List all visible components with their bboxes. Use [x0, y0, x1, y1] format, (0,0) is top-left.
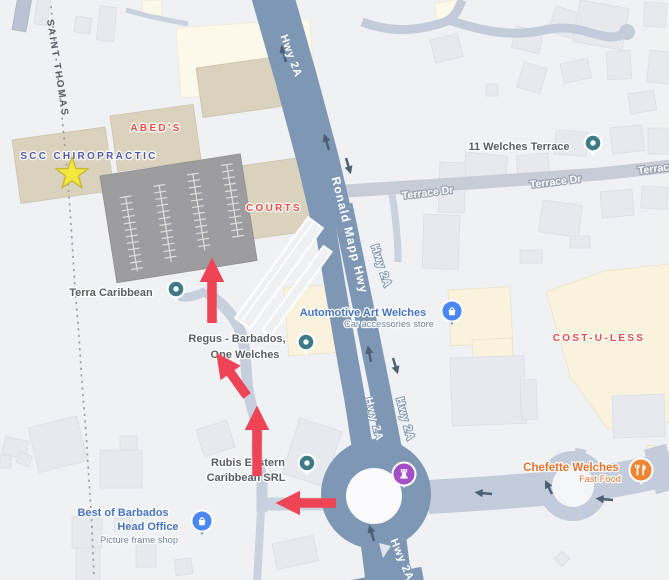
map-canvas[interactable]: Hwy 2A Ronald Mapp Hwy Hwy 2A Hwy 2A Hwy… — [0, 0, 669, 580]
svg-text:Caribbean SRL: Caribbean SRL — [207, 472, 286, 484]
poi-label-11-welches-terrace[interactable]: 11 Welches Terrace — [468, 141, 569, 153]
svg-text:Automotive Art Welches: Automotive Art Welches — [300, 307, 427, 319]
svg-text:Car accessories store: Car accessories store — [344, 319, 434, 329]
poi-label-terra-caribbean[interactable]: Terra Caribbean — [69, 287, 153, 299]
area-label-abeds: ABED'S — [130, 123, 181, 134]
svg-text:Rubis Eastern: Rubis Eastern — [211, 457, 285, 469]
svg-text:Fast Food: Fast Food — [579, 474, 621, 484]
map-svg[interactable]: Hwy 2A Ronald Mapp Hwy Hwy 2A Hwy 2A Hwy… — [0, 0, 669, 580]
svg-text:Picture frame shop: Picture frame shop — [100, 535, 178, 545]
area-label-courts: COURTS — [246, 203, 302, 214]
svg-text:Best of Barbados: Best of Barbados — [77, 507, 168, 519]
svg-text:One Welches: One Welches — [211, 349, 280, 361]
svg-text:Regus - Barbados,: Regus - Barbados, — [188, 333, 285, 345]
svg-text:Head Office: Head Office — [117, 521, 178, 533]
parking-lot — [100, 154, 257, 283]
area-label-scc-chiropractic: SCC CHIROPRACTIC — [20, 151, 157, 162]
area-label-cost-u-less: COST-U-LESS — [553, 333, 646, 344]
svg-text:Chefette Welches: Chefette Welches — [523, 462, 619, 474]
